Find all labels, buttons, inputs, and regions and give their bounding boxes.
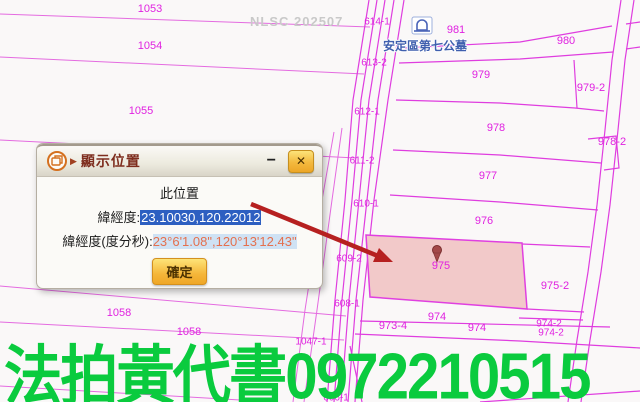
parcel-label: 975-2 [541, 280, 569, 292]
parcel-label: 981 [447, 24, 465, 36]
parcel-label: 1058 [107, 307, 131, 319]
latlng-row: 緯經度:23.10030,120.22012 [98, 207, 262, 226]
confirm-button[interactable]: 確定 [152, 258, 206, 285]
highlighted-parcel-975[interactable] [366, 235, 527, 309]
parcel-label: 1053 [138, 3, 162, 15]
cemetery-icon [412, 17, 432, 34]
dms-row: 緯經度(度分秒):23°6'1.08",120°13'12.43" [62, 231, 296, 250]
parcel-label: 611-2 [350, 156, 375, 167]
latlng-value: 23.10030,120.22012 [140, 210, 261, 225]
parcel-label: 608-1 [334, 299, 360, 310]
parcel-label: 974-2 [538, 328, 564, 339]
dialog-body: 此位置 緯經度:23.10030,120.22012 緯經度(度分秒):23°6… [37, 177, 322, 285]
parcel-label: 613-2 [361, 58, 387, 69]
parcel-label: 606-1 [323, 393, 349, 402]
parcel-label: 974 [468, 322, 486, 334]
dms-label: 緯經度(度分秒): [62, 234, 152, 249]
parcel-label: 1058 [177, 326, 201, 338]
map-watermark: NLSC 202507 [250, 14, 343, 29]
map-viewport[interactable]: NLSC 202507 安定區第七公墓 10531054105510581058… [0, 0, 640, 402]
latlng-label: 緯經度: [98, 210, 141, 225]
caret-icon: ▶ [70, 156, 77, 167]
location-heading: 此位置 [160, 183, 199, 202]
parcel-label: 612-1 [354, 107, 380, 118]
parcel-label: 610-1 [353, 199, 379, 210]
parcel-label: 1047-1 [295, 337, 326, 348]
parcel-label: 976 [475, 215, 493, 227]
poi-label-cemetery: 安定區第七公墓 [383, 37, 467, 54]
parcel-label: 978-2 [598, 136, 626, 148]
dialog-titlebar[interactable]: ▶ 顯示位置 − ✕ [37, 144, 322, 177]
dms-value: 23°6'1.08",120°13'12.43" [153, 234, 297, 249]
dialog-title: 顯示位置 [81, 151, 141, 171]
close-button[interactable]: ✕ [288, 150, 314, 173]
parcel-label: 609-2 [336, 254, 362, 265]
minimize-button[interactable]: − [267, 156, 276, 166]
parcel-label: 973-4 [379, 320, 407, 332]
show-location-icon [47, 151, 67, 171]
parcel-label: 1055 [129, 105, 153, 117]
parcel-label: 979-2 [577, 82, 605, 94]
parcel-label: 977 [479, 170, 497, 182]
parcel-label: 980 [557, 35, 575, 47]
parcel-label: 614-1 [364, 17, 390, 28]
parcel-label: 979 [472, 69, 490, 81]
parcel-label: 974 [428, 311, 446, 323]
parcel-label: 1054 [138, 40, 162, 52]
show-location-dialog: ▶ 顯示位置 − ✕ 此位置 緯經度:23.10030,120.22012 緯經… [36, 143, 323, 289]
parcel-label: 978 [487, 122, 505, 134]
parcel-label: 975 [432, 260, 450, 272]
